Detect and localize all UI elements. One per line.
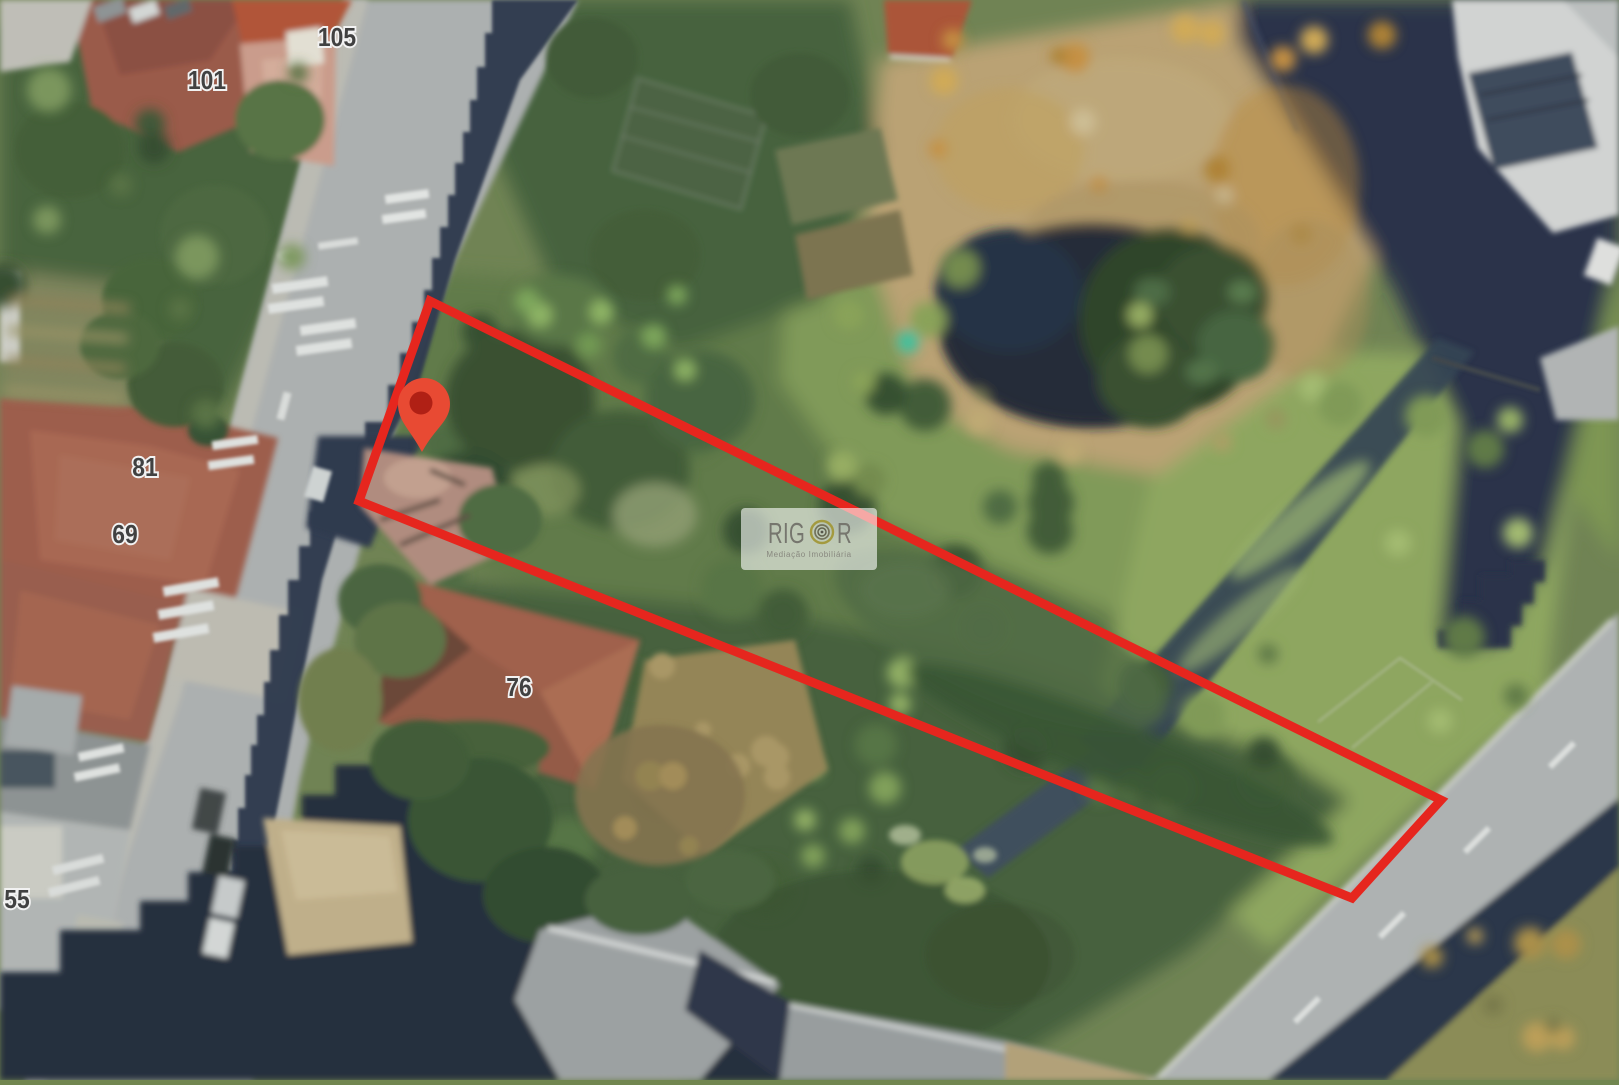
svg-text:69: 69 [112,521,137,550]
svg-text:R: R [837,518,852,550]
svg-text:101: 101 [188,67,226,96]
svg-text:Mediação Imobiliária: Mediação Imobiliária [766,550,851,559]
svg-text:105: 105 [318,24,356,53]
svg-text:76: 76 [506,674,531,703]
svg-text:RIG: RIG [768,518,805,550]
svg-text:81: 81 [132,454,157,483]
svg-text:55: 55 [4,886,29,915]
